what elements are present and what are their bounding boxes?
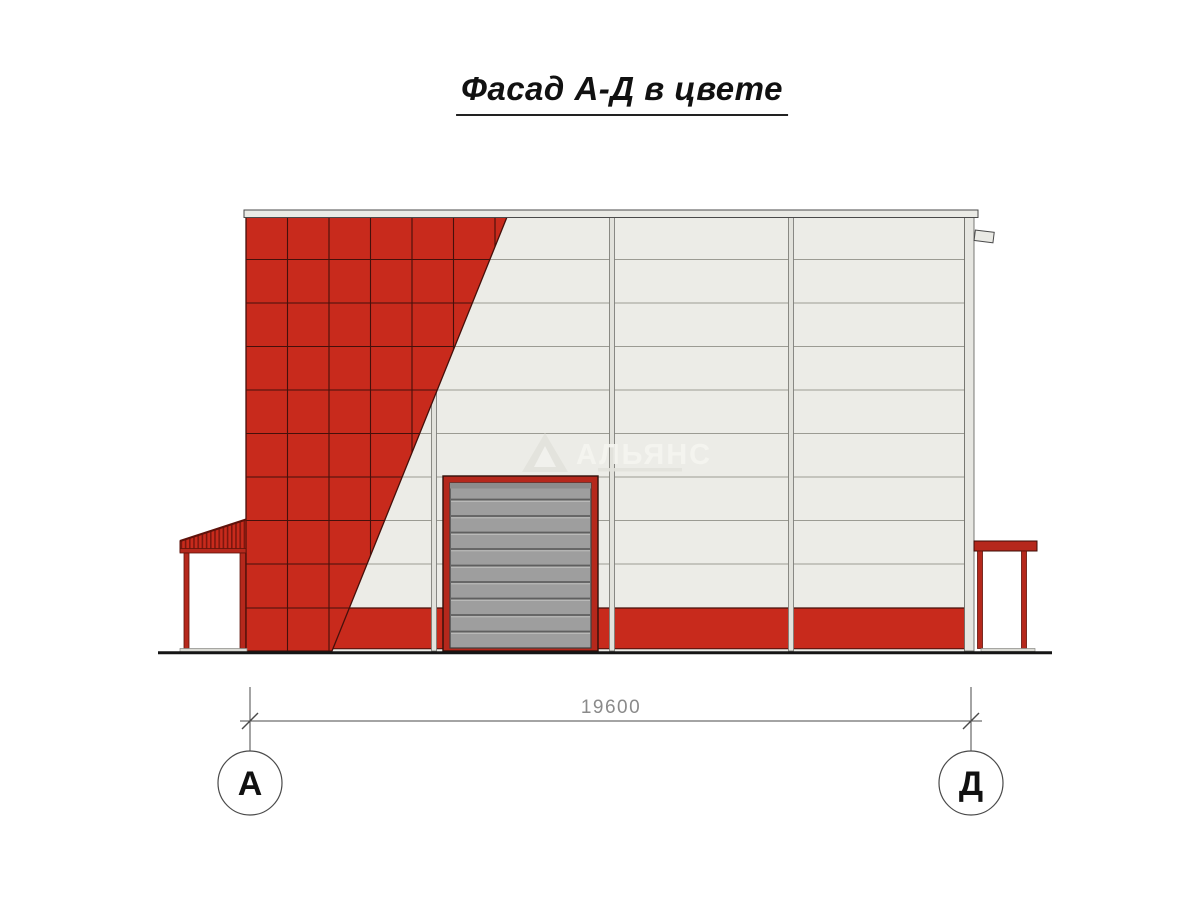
axis-label-a: А [238, 765, 263, 803]
watermark-text: АЛЬЯНС [576, 439, 712, 471]
facade-drawing: АЛЬЯНС [0, 0, 1200, 900]
left-canopy-roof [180, 520, 246, 553]
right-canopy-beam [974, 541, 1037, 551]
parapet-cap [244, 210, 978, 218]
mullion [610, 217, 615, 651]
drawing-sheet: Фасад А-Д в цвете [0, 0, 1200, 900]
corner-trim [965, 217, 975, 651]
dimension-value: 19600 [581, 697, 641, 718]
left-canopy-post [240, 553, 246, 649]
mullion [789, 217, 794, 651]
axis-label-d: Д [959, 765, 983, 803]
right-canopy [974, 541, 1037, 652]
right-canopy-post [1022, 551, 1027, 649]
left-canopy [180, 520, 247, 653]
left-canopy-fascia [180, 549, 246, 554]
watermark-subtext-bar [598, 468, 682, 472]
axis-markers: А Д [218, 751, 1003, 815]
left-canopy-post [184, 553, 189, 649]
right-canopy-post [978, 551, 983, 649]
roof-scupper [974, 230, 994, 243]
sectional-gate [443, 476, 598, 651]
dimension: 19600 [240, 687, 982, 751]
right-canopy-base [981, 649, 1035, 652]
